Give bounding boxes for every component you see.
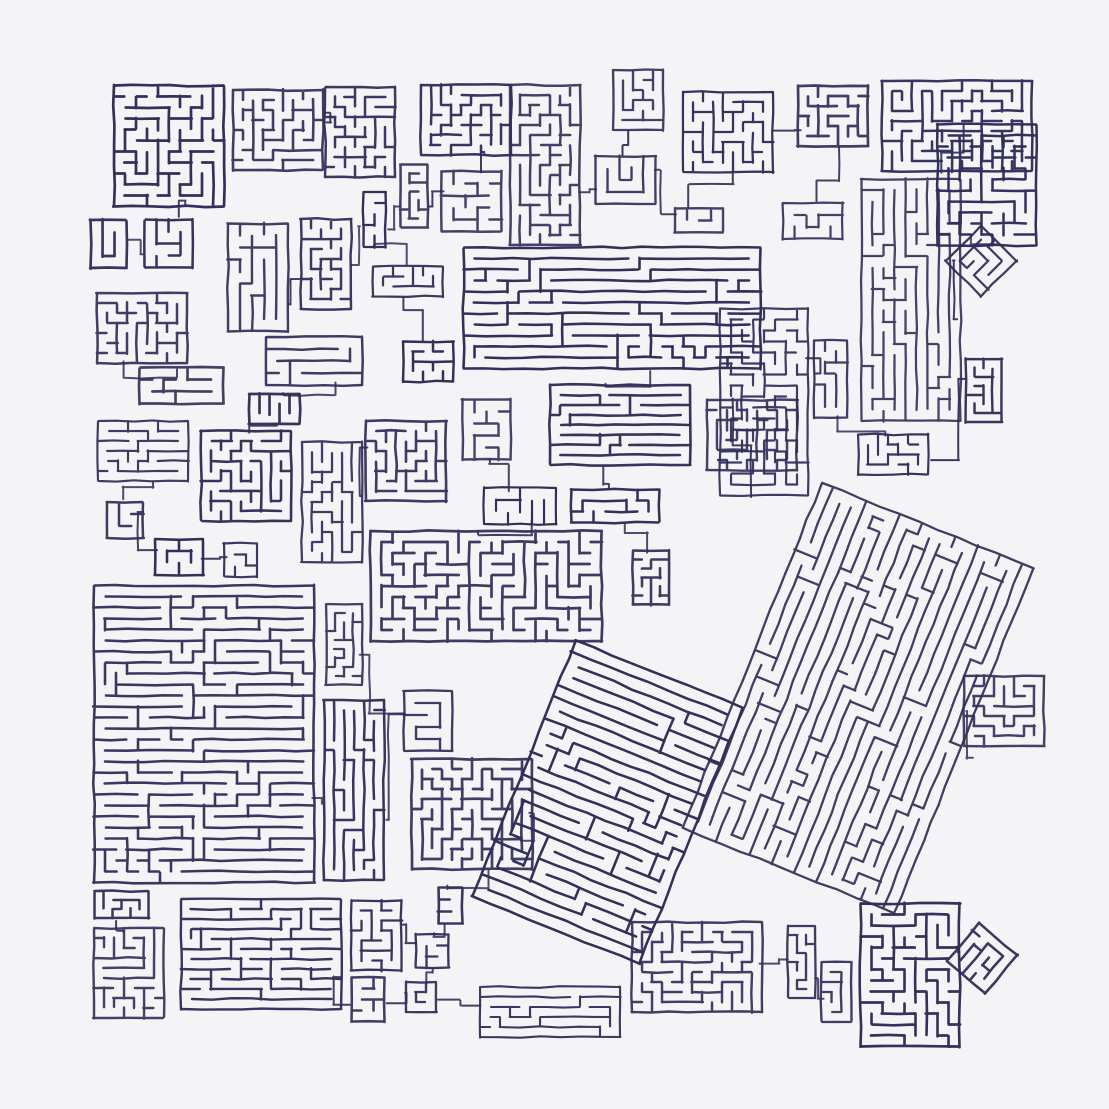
artwork-page <box>0 0 1109 1109</box>
maze-artwork <box>0 0 1109 1109</box>
